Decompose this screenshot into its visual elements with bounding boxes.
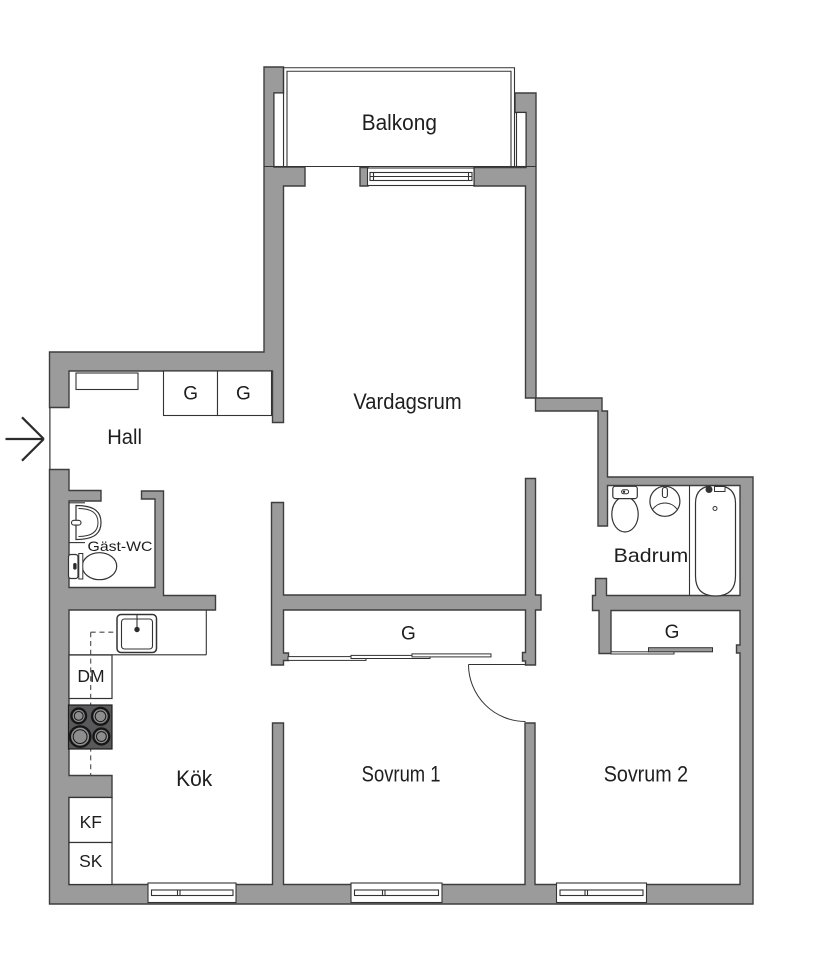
svg-text:G: G bbox=[401, 624, 416, 645]
svg-text:Kök: Kök bbox=[176, 767, 212, 792]
svg-text:Hall: Hall bbox=[107, 426, 142, 449]
svg-text:Gäst-WC: Gäst-WC bbox=[88, 540, 153, 555]
svg-text:Sovrum 2: Sovrum 2 bbox=[604, 763, 688, 787]
svg-text:G: G bbox=[183, 384, 198, 405]
svg-text:Balkong: Balkong bbox=[362, 110, 437, 135]
svg-text:Sovrum 1: Sovrum 1 bbox=[362, 763, 441, 787]
svg-text:DM: DM bbox=[77, 666, 104, 686]
svg-text:Vardagsrum: Vardagsrum bbox=[353, 390, 461, 414]
svg-text:G: G bbox=[665, 622, 680, 643]
svg-text:SK: SK bbox=[79, 851, 103, 871]
svg-text:G: G bbox=[236, 384, 251, 405]
svg-text:KF: KF bbox=[80, 812, 102, 832]
svg-text:Badrum: Badrum bbox=[614, 546, 689, 567]
